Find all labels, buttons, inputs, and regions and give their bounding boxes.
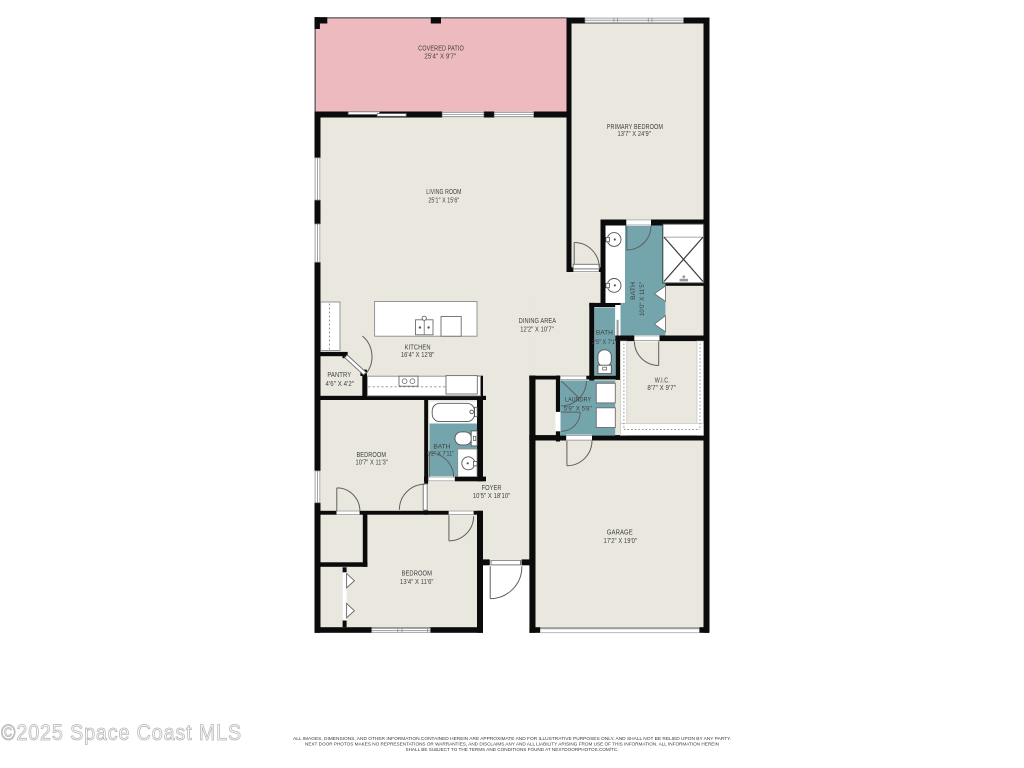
- svg-text:NEXT DOOR PHOTOS MAKES NO REPR: NEXT DOOR PHOTOS MAKES NO REPRESENTATION…: [305, 742, 720, 748]
- svg-text:10'5" X 18'10": 10'5" X 18'10": [473, 491, 511, 500]
- svg-text:LAUNDRY: LAUNDRY: [565, 396, 592, 403]
- svg-text:17'2" X 19'0": 17'2" X 19'0": [604, 536, 638, 545]
- svg-text:4'6" X 4'2": 4'6" X 4'2": [326, 379, 355, 388]
- svg-text:13'7" X 24'9": 13'7" X 24'9": [617, 129, 651, 138]
- svg-text:16'4" X 12'8": 16'4" X 12'8": [401, 350, 435, 359]
- svg-text:13'4" X 11'6": 13'4" X 11'6": [400, 577, 434, 586]
- svg-text:BATH: BATH: [630, 282, 637, 300]
- svg-text:PANTRY: PANTRY: [327, 370, 351, 379]
- svg-text:25'4" X 9'7": 25'4" X 9'7": [424, 51, 456, 60]
- svg-text:©2025 Space Coast MLS: ©2025 Space Coast MLS: [1, 720, 242, 745]
- svg-text:DINING AREA: DINING AREA: [519, 316, 557, 325]
- svg-text:5'9" X 5'8": 5'9" X 5'8": [564, 406, 592, 413]
- svg-text:12'2" X 10'7": 12'2" X 10'7": [520, 325, 554, 334]
- svg-text:SHALL BE SUBJECT TO THE TERMS: SHALL BE SUBJECT TO THE TERMS AND CONDIT…: [406, 747, 619, 753]
- svg-text:2'5" X 7'1": 2'5" X 7'1": [592, 339, 617, 346]
- svg-text:10'0" X 11'5": 10'0" X 11'5": [639, 282, 646, 316]
- svg-text:BATH: BATH: [596, 330, 613, 337]
- svg-text:10'7" X 11'3": 10'7" X 11'3": [356, 457, 389, 466]
- svg-text:5'2" X 7'11": 5'2" X 7'11": [427, 451, 454, 458]
- svg-text:BATH: BATH: [433, 443, 450, 450]
- svg-text:25'1" X 15'6": 25'1" X 15'6": [428, 195, 459, 204]
- svg-text:ALL IMAGES, DIMENSIONS, AND OT: ALL IMAGES, DIMENSIONS, AND OTHER INFORM…: [293, 736, 731, 742]
- svg-text:8'7" X 9'7": 8'7" X 9'7": [647, 383, 676, 392]
